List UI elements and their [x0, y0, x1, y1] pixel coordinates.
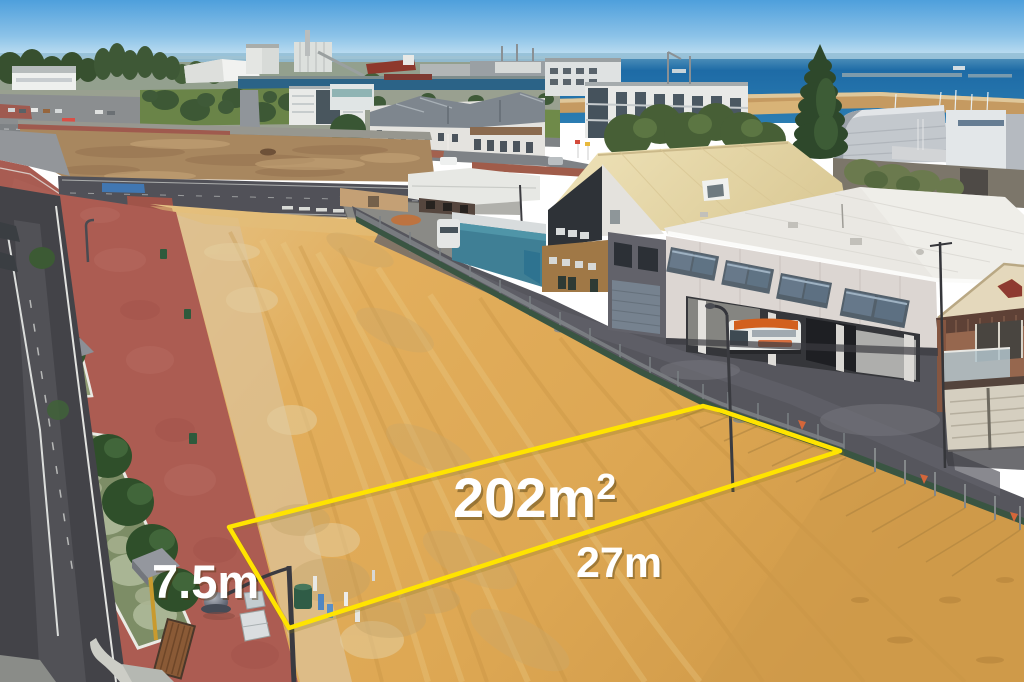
svg-text:7.5m: 7.5m — [152, 555, 259, 608]
svg-text:202m2: 202m2 — [453, 466, 616, 529]
svg-text:27m: 27m — [576, 539, 662, 587]
